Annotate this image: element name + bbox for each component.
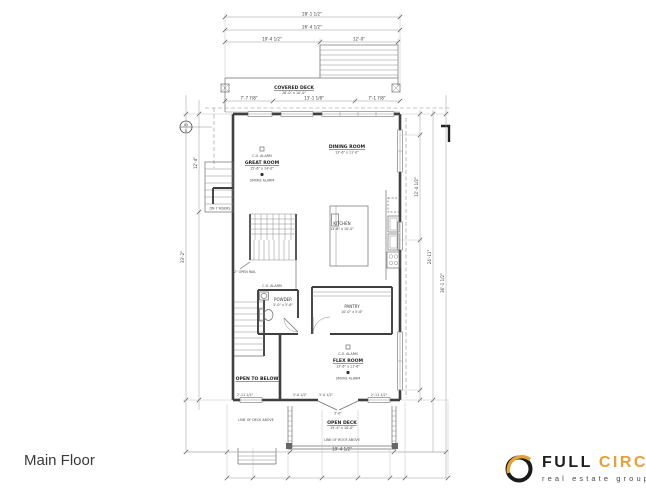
deck-dim-3: 7'-1 7/8"	[368, 95, 385, 100]
covered-deck-dim: 28'-0" x 10'-0"	[282, 91, 306, 95]
dining-room: DINING ROOM 13'-6" x 11'-0"	[329, 144, 366, 155]
powder-dim: 5'-0" x 5'-6"	[273, 303, 293, 307]
deck-post-bl	[286, 443, 292, 449]
company-logo: FULLCIRCLE real estate group	[503, 452, 646, 484]
logo-word-circle: CIRCLE	[599, 454, 646, 471]
flex-co-alarm: C.O. ALARM	[338, 352, 358, 356]
bottom-wall-door-dims: 2'-11 1/2" 3'-0 1/2" 3'-0 1/2" 2'-11 1/2…	[237, 393, 388, 397]
main-staircase: 42" OPEN RAIL	[232, 214, 296, 290]
toilet	[260, 309, 274, 321]
roof-above-note: LINE OF ROOF ABOVE	[324, 438, 360, 442]
deck-post-br	[392, 443, 398, 449]
flex-room-dim: 13'-6" x 11'-6"	[336, 365, 360, 369]
door-dim-1: 2'-11 1/2"	[237, 393, 254, 397]
dim-right-1: 24'-11"	[427, 250, 432, 265]
door-dim-2: 3'-0 1/2"	[293, 393, 308, 397]
open-deck-dim: 19'-4" x 10'-0"	[330, 426, 354, 430]
pantry-label: PANTRY	[344, 304, 360, 309]
great-room-smoke-alarm: SMOKE ALARM	[250, 179, 275, 183]
dn-risers-note: DN 7 RISERS	[209, 207, 230, 211]
kitchen-dim: 13'-6" x 10'-0"	[330, 227, 354, 231]
great-room-label: GREAT ROOM	[245, 160, 280, 166]
right-dimension-lines: 12'-4 1/2" 24'-11" 36'-1 1/2"	[398, 95, 449, 478]
logo-word-full: FULL	[542, 454, 593, 471]
floor-plan-page: 28'-1 1/2" 26'-4 1/2" 19'-4 1/2" 12'-0" …	[0, 0, 646, 500]
dim-bottom-1: 19'-4 1/2"	[332, 446, 352, 451]
smoke-alarm-symbol-flex	[346, 371, 349, 374]
dining-room-label: DINING ROOM	[329, 144, 366, 150]
smoke-alarm-symbol	[260, 173, 263, 176]
great-room-co-alarm: C.O. ALARM	[252, 154, 272, 158]
pantry-dim: 10'-0" x 5'-6"	[341, 310, 363, 314]
stair-note: 42" OPEN RAIL	[232, 270, 256, 274]
covered-deck: COVERED DECK 28'-0" x 10'-0" 7'-7 7/8" 1…	[221, 45, 402, 112]
door-dim-4: 2'-11 1/2"	[371, 393, 388, 397]
full-circle-logo-icon	[503, 452, 535, 484]
dim-top-right-seg: 12'-0"	[353, 36, 365, 41]
logo-tagline: real estate group	[542, 474, 646, 483]
dishwasher	[388, 198, 399, 212]
door-center-dim: 5'-0"	[334, 412, 342, 416]
basement-staircase	[234, 300, 264, 356]
kitchen-label: KITCHEN	[333, 221, 350, 226]
dining-room-dim: 13'-6" x 11'-0"	[335, 151, 359, 155]
great-room: C.O. ALARM GREAT ROOM 15'-6" x 14'-0" SM…	[245, 147, 280, 183]
fridge	[388, 216, 399, 232]
great-room-dim: 15'-6" x 14'-0"	[250, 167, 274, 171]
dim-top-second: 26'-4 1/2"	[302, 24, 322, 29]
dim-left-2: 12'-4"	[193, 157, 198, 169]
open-to-below-label: OPEN TO BELOW	[236, 376, 279, 382]
cooktop	[387, 252, 400, 268]
flex-room: C.O. ALARM FLEX ROOM 13'-6" x 11'-6" SMO…	[280, 334, 364, 400]
exterior-stairs-left: DN 7 RISERS	[205, 162, 233, 212]
open-deck: OPEN DECK 19'-4" x 10'-0" LINE OF ROOF A…	[238, 406, 398, 449]
floor-plan-drawing: 28'-1 1/2" 26'-4 1/2" 19'-4 1/2" 12'-0" …	[0, 0, 646, 500]
kitchen: KITCHEN 13'-6" x 10'-0"	[330, 190, 400, 280]
pantry: PANTRY 10'-0" x 5'-6"	[312, 287, 392, 334]
oven	[388, 234, 399, 250]
deck-post-right	[392, 84, 400, 92]
flex-smoke-alarm: SMOKE ALARM	[336, 377, 361, 381]
co-alarm-symbol-flex	[346, 345, 350, 349]
french-door-swing: 5'-0"	[318, 401, 358, 416]
deck-dim-2: 13'-1 1/8"	[304, 95, 324, 100]
sink	[260, 292, 269, 300]
roof-overhang-dashed-lines	[205, 108, 452, 398]
co-alarm-symbol	[260, 147, 264, 151]
dim-right-3: 12'-4 1/2"	[414, 177, 419, 197]
dim-left-1: 33'-2"	[180, 251, 185, 263]
deck-stairs-bottom	[238, 448, 276, 464]
deck-above-note: LINE OF DECK ABOVE	[238, 418, 273, 422]
deck-dim-1: 7'-7 7/8"	[240, 95, 257, 100]
dim-top-left-seg: 19'-4 1/2"	[262, 36, 282, 41]
door-dim-3: 3'-0 1/2"	[319, 393, 334, 397]
bottom-dimension-lines: 19'-4 1/2"	[186, 402, 450, 480]
logo-wordmark: FULLCIRCLE	[542, 454, 646, 472]
powder-label: POWDER	[274, 297, 292, 302]
dim-top-overall: 28'-1 1/2"	[302, 11, 322, 16]
co-alarm-hall: C.O. ALARM	[262, 284, 282, 288]
page-title: Main Floor	[24, 452, 95, 469]
roof-corner-mark	[441, 126, 449, 142]
flex-room-label: FLEX ROOM	[333, 358, 364, 364]
dim-right-2: 36'-1 1/2"	[440, 273, 445, 293]
section-marker: A5 8	[180, 121, 212, 133]
